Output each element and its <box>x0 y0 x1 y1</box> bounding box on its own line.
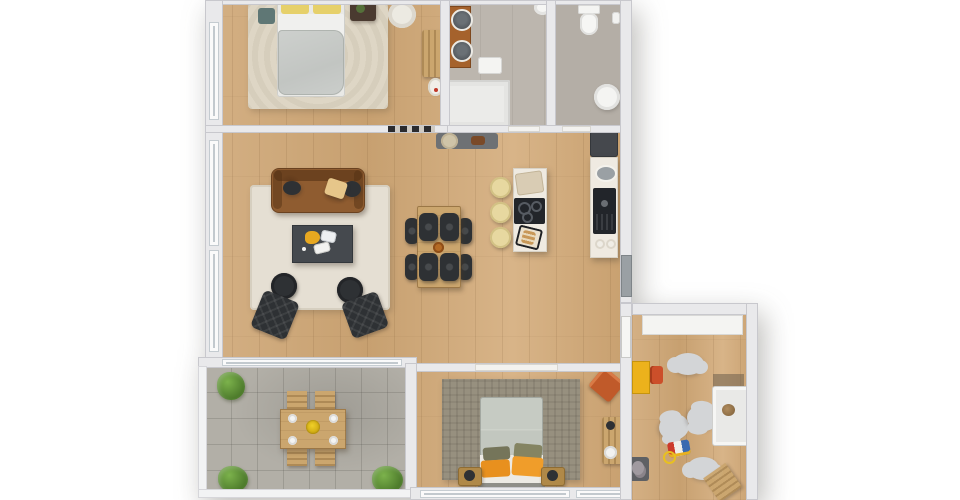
nightstand-plant <box>356 4 365 13</box>
bedroom1-stool <box>258 8 275 24</box>
bed2-lamp-left <box>464 470 475 481</box>
counter-roll-2 <box>606 239 616 249</box>
kids-yarn-ring <box>663 451 676 464</box>
bed2-pillow-orange-left <box>481 459 511 477</box>
door-bathroom-main <box>508 126 540 132</box>
sofa-cushion-left <box>283 181 301 195</box>
terrace-centerpiece <box>306 420 320 434</box>
wall-top <box>205 0 632 5</box>
wall-terrace-bedroom2 <box>405 363 417 497</box>
counter-roll-1 <box>595 239 605 249</box>
window-living-left-1 <box>209 140 219 246</box>
crib-teddy <box>722 404 735 416</box>
terrace-chair-tr <box>315 391 335 409</box>
wall-kids-right <box>746 303 758 500</box>
floor-plan-canvas <box>0 0 960 500</box>
window-bedroom2-bottom-1 <box>420 490 570 498</box>
dining-chair-3 <box>419 253 438 281</box>
crib-shadow <box>713 374 744 388</box>
bedroom1-armchair <box>388 1 416 28</box>
terrace-plant-top-left <box>217 372 245 400</box>
terrace-plate-3 <box>288 436 297 445</box>
door-bathroom-guest <box>562 126 591 132</box>
terrace-plate-1 <box>288 414 297 423</box>
sofa-back <box>274 170 362 181</box>
terrace-wall-left <box>198 366 207 497</box>
laundry-basket-label <box>434 88 438 92</box>
bath-mat-white <box>478 57 502 74</box>
terrace-plate-2 <box>329 414 338 423</box>
dining-chair-1 <box>419 213 438 241</box>
hall-soap-box <box>471 136 485 145</box>
terrace-chair-br <box>315 448 335 466</box>
terrace-glass-door <box>222 359 402 366</box>
terrace-plate-4 <box>329 436 338 445</box>
dining-table-bowl <box>433 242 444 253</box>
ladder-shelf <box>422 30 442 77</box>
terrace-wall-bottom <box>198 489 412 498</box>
oven-knob <box>601 200 608 207</box>
toilet-bowl <box>580 13 598 35</box>
wall-bathroom-left <box>440 0 450 132</box>
bedroom1-sliding-door-track <box>388 126 435 132</box>
paper-holder <box>612 12 620 24</box>
vanity-basin-bottom <box>451 40 473 62</box>
oven-vents <box>596 214 613 230</box>
wall-between-bathrooms <box>546 0 556 129</box>
island-cooktop <box>514 198 545 224</box>
bar-stool-3 <box>490 227 511 248</box>
bar-stool-1 <box>490 177 511 198</box>
desk-accessory <box>606 421 615 430</box>
kids-yellow-cabinet <box>632 361 650 394</box>
hall-round-rug <box>441 133 458 149</box>
dining-chair-2 <box>440 213 459 241</box>
bed2-lamp-right <box>547 470 558 481</box>
kids-crib <box>713 387 750 445</box>
kids-wardrobe <box>642 315 743 335</box>
apartment-floor-plan <box>0 0 960 500</box>
window-bedroom2-bottom-2 <box>576 490 624 498</box>
oven <box>593 188 616 234</box>
entrance-door <box>621 255 632 297</box>
desk-stool <box>604 446 617 459</box>
terrace-chair-bl <box>287 448 307 466</box>
bar-stool-2 <box>490 202 511 223</box>
sofa-arm-left <box>273 170 282 209</box>
bedroom2-door-opening <box>475 364 558 371</box>
wall-kids-top <box>632 303 758 315</box>
walk-in-shower <box>443 80 510 128</box>
kids-red-chair <box>650 366 663 384</box>
vanity-basin-top <box>451 9 473 31</box>
kids-room-door <box>621 316 631 358</box>
window-bedroom1-left <box>209 22 219 120</box>
coffee-table-dot <box>302 247 306 251</box>
counter-sink <box>595 165 617 182</box>
guest-sink <box>594 84 620 110</box>
terrace-chair-tl <box>287 391 307 409</box>
bed2-pillow-orange-right <box>511 456 543 477</box>
refrigerator <box>590 131 618 157</box>
play-mat-plush <box>632 461 644 475</box>
window-living-left-2 <box>209 250 219 352</box>
bed1-duvet <box>278 30 344 95</box>
dining-chair-4 <box>440 253 459 281</box>
cloud-rug-1 <box>672 353 704 375</box>
island-tray <box>515 170 545 196</box>
